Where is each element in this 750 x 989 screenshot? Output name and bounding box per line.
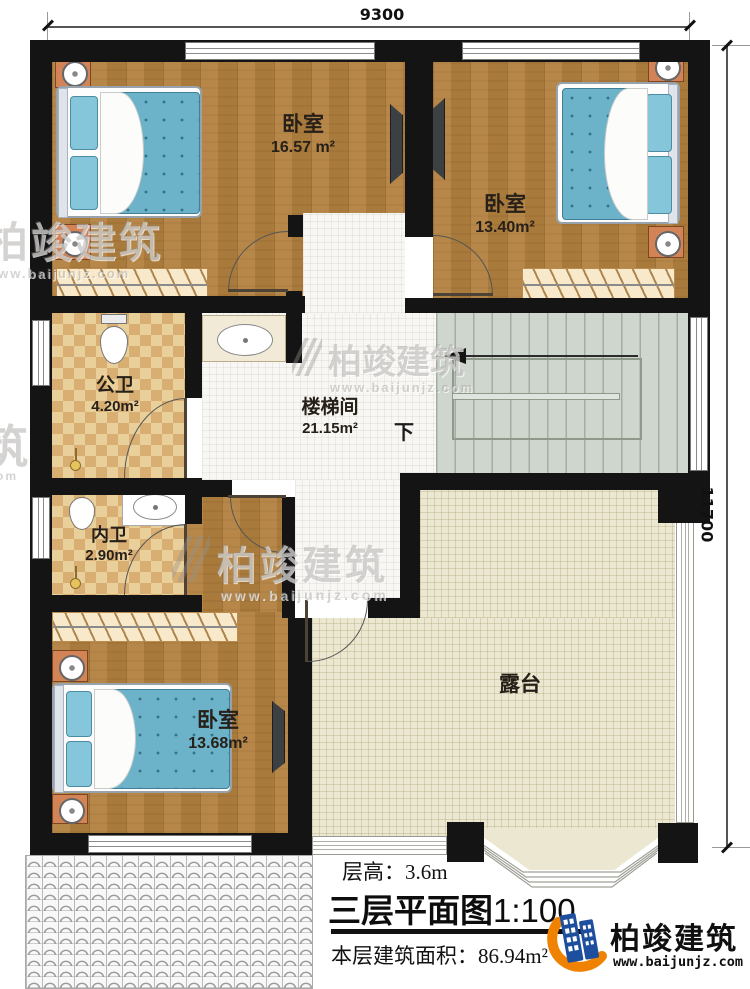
floor-height-label: 层高：3.6m [342, 856, 448, 886]
terrace-railing-right [676, 500, 694, 823]
room-name: 公卫 [72, 374, 158, 398]
room-label-bedroom1: 卧室 16.57 m² [238, 112, 368, 158]
toilet-bowl [100, 326, 128, 364]
watermark-url: www.baijunjz.com [330, 381, 474, 394]
room-name: 卧室 [153, 708, 283, 734]
wall-bath-right-a [185, 313, 202, 398]
wall-left [30, 40, 52, 855]
wall-corridor-right [405, 215, 433, 237]
shower-drain-inner-bath [70, 578, 81, 589]
window-inner-bath [32, 497, 50, 559]
bed-pillow [646, 94, 672, 152]
dimension-line-top [48, 26, 690, 28]
toilet-public-bath [97, 314, 131, 366]
floor-area-line: 本层建筑面积：86.94m² [331, 940, 548, 970]
watermark-logo-icon [172, 536, 210, 582]
bed-pillow [646, 156, 672, 214]
dimension-top-value: 9300 [352, 5, 412, 24]
wall-bedroom-divider [405, 60, 433, 237]
door-leaf-terrace [305, 600, 308, 662]
bed-bedroom2 [556, 82, 680, 224]
watermark-url: www.baijunjz.com [0, 267, 162, 280]
nightstand-lamp [52, 794, 88, 824]
watermark-text: 柏竣建筑 [292, 338, 474, 379]
dimension-right-value: 11700 [698, 480, 717, 550]
terrace-column [447, 822, 484, 862]
room-name: 卧室 [238, 112, 368, 138]
room-area: 21.15m² [282, 420, 378, 439]
company-logo-icon [540, 908, 614, 976]
dimension-line-right [726, 46, 728, 848]
dimension-extension [712, 45, 750, 46]
door-leaf-bedroom1 [228, 289, 288, 292]
room-area: 2.90m² [66, 547, 152, 566]
wardrobe-bedroom2 [522, 268, 675, 302]
window-bedroom3-bottom [88, 835, 252, 853]
room-name: 内卫 [66, 524, 152, 547]
watermark-text: 柏竣建筑 [0, 222, 162, 264]
wall-bath-divider [52, 478, 185, 495]
watermark-logo-icon [292, 338, 322, 376]
nightstand-lamp [648, 226, 684, 258]
room-name: 卧室 [440, 192, 570, 218]
bed-bedroom1 [56, 86, 202, 218]
room-label-inner-bath: 内卫 2.90m² [66, 524, 152, 565]
terrace-floor-main [312, 618, 675, 855]
tv-bedroom2 [432, 98, 445, 180]
terrace-railing-left [312, 836, 447, 855]
roof-tiles [25, 855, 313, 989]
window-public-bath [32, 320, 50, 386]
company-logo: 柏竣建筑 www.baijunjz.com [540, 904, 750, 986]
bed-pillow [66, 741, 92, 787]
window-bedroom1-top [185, 42, 375, 60]
door-leaf-bedroom2 [433, 293, 493, 296]
bed-pillow [66, 691, 92, 737]
hall-vanity-counter [202, 315, 286, 362]
watermark: 柏竣建筑 www.baijunjz.com [172, 536, 389, 602]
stair-down-label: 下 [394, 416, 414, 445]
sink-icon [133, 494, 177, 520]
dimension-extension [712, 847, 750, 848]
corridor-floor [303, 213, 405, 313]
title-text: 三层平面图 [328, 892, 493, 929]
company-website: www.baijunjz.com [613, 954, 743, 970]
stair-handrail [452, 393, 620, 400]
wall-bath-right-b [185, 478, 202, 524]
company-name: 柏竣建筑 [610, 914, 738, 958]
stair-direction-line [466, 355, 638, 357]
watermark-url: www.baijunjz.com [220, 588, 389, 602]
room-name: 楼梯间 [282, 396, 378, 420]
room-area: 13.68m² [153, 734, 283, 754]
floor-plan-canvas: 下 卧室 16.57 m² 卧室 13.40m² 卧室 13.68m² 公卫 4… [0, 0, 750, 989]
room-label-bedroom3: 卧室 13.68m² [153, 708, 283, 754]
bed-headboard [54, 685, 64, 793]
room-label-terrace: 露台 [488, 672, 552, 698]
room-label-public-bath: 公卫 4.20m² [72, 374, 158, 417]
floor-area-value: 86.94m² [478, 944, 548, 968]
watermark: 柏竣建筑 www.baijunjz.com [0, 222, 162, 280]
drawing-title: 三层平面图1:100 [328, 884, 576, 932]
watermark-text: 柏竣建筑 [172, 536, 389, 586]
watermark-partial: 筑 .com [0, 424, 28, 482]
wall-corridor-left [288, 215, 303, 237]
terrace-column [658, 823, 698, 863]
window-staircase [690, 317, 708, 471]
floor-area-label: 本层建筑面积： [331, 944, 478, 968]
terrace-floor-upper [420, 490, 675, 618]
room-label-bedroom2: 卧室 13.40m² [440, 192, 570, 238]
bed-pillow [70, 96, 98, 150]
tv-bedroom1 [390, 104, 403, 184]
door-leaf-bedroom3 [228, 495, 286, 498]
window-bedroom2-top [462, 42, 640, 60]
toilet-tank [101, 314, 127, 324]
watermark-text: 筑 [0, 424, 28, 470]
bed-pillow [70, 156, 98, 210]
room-area: 16.57 m² [238, 138, 368, 158]
room-area: 13.40m² [440, 218, 570, 238]
wall-bedroom2-bottom [405, 298, 690, 313]
wardrobe-bedroom3 [52, 612, 238, 642]
door-leaf-public-bath [184, 398, 187, 478]
watermark: 柏竣建筑 www.baijunjz.com [292, 338, 474, 394]
nightstand-lamp [52, 650, 88, 682]
room-area: 4.20m² [72, 398, 158, 417]
room-label-stair-hall: 楼梯间 21.15m² [282, 396, 378, 439]
wall-stair-bottom [400, 473, 660, 490]
sink-icon [217, 324, 273, 356]
shower-drain-public-bath [70, 460, 81, 471]
wall-bedroom1-bottom [52, 296, 305, 313]
bed-headboard [58, 88, 68, 218]
